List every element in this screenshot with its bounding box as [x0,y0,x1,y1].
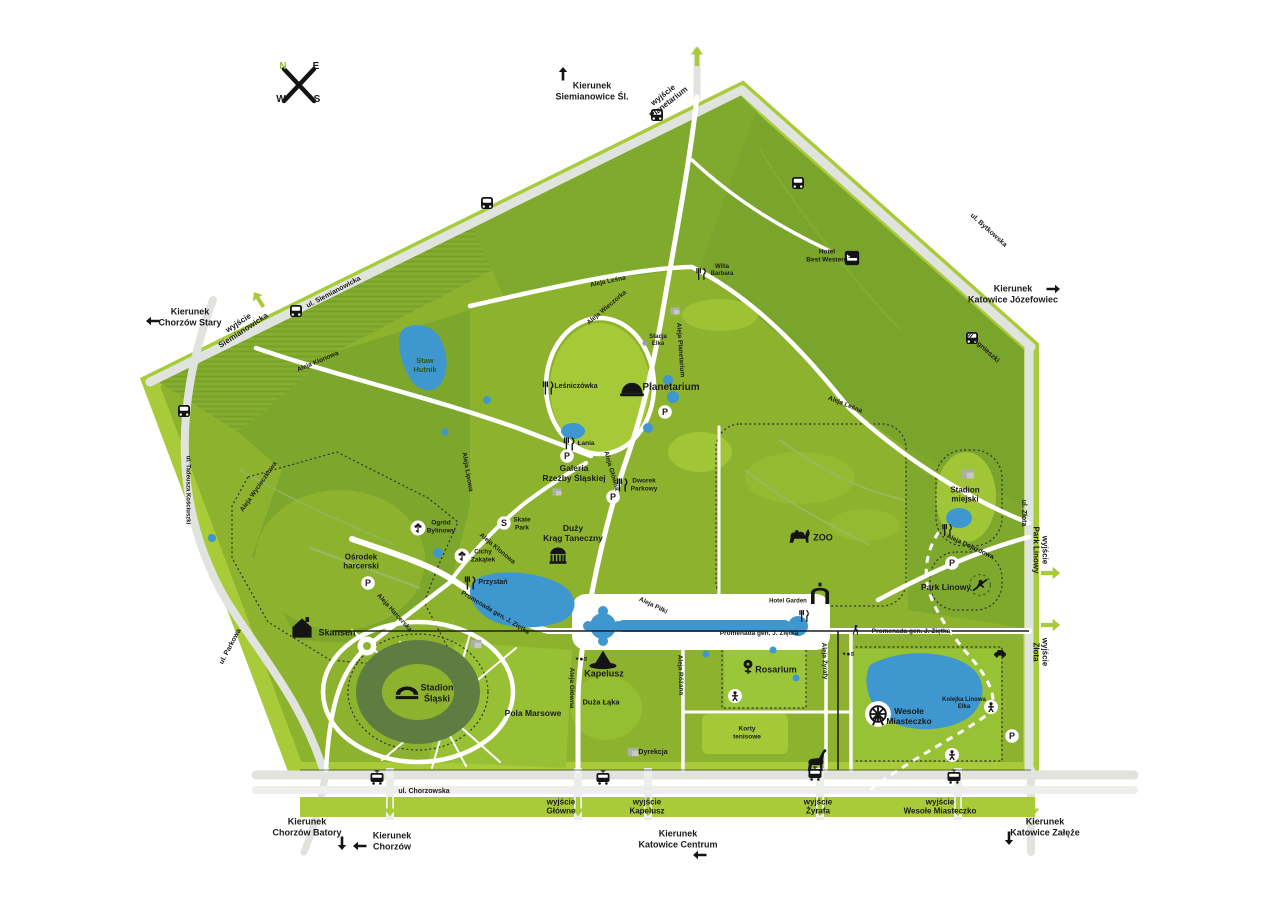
arrow-up-siemianowice-icon [559,67,567,81]
arrow-right-jozefowiec-icon [1047,285,1061,293]
garden-bylinowy-icon [411,521,426,536]
galeria-building-icon [553,489,562,496]
road-building-icon [671,308,680,315]
arrow-left-chorzow-icon [353,842,367,850]
bus-stop-4-icon [481,197,493,209]
parking-harcerski-icon [361,576,375,590]
ferris-wheel-icon [865,701,891,727]
rotunda-icon [550,548,567,564]
arrow-down-batory-icon [338,837,346,851]
bus-stop-3-icon [178,405,190,417]
skatepark-icon [497,516,511,530]
parking-planetarium-icon [658,405,672,419]
compass-icon [284,69,314,101]
bus-stop-1-icon [651,109,663,121]
chorzowska-median [300,797,1035,817]
roundabout-center [363,642,371,650]
stands-building-icon [962,469,974,478]
park-map-svg: P S [0,0,1280,905]
galeria-pond [561,423,585,439]
exit-arrow-siemianowicka-icon [249,289,268,310]
hotel-bed-icon [845,251,859,265]
stadium-field [382,664,454,720]
parking-wesole-icon [1005,729,1019,743]
parking-stadion-miejski-icon [945,556,959,570]
exit-arrow-park-linowy-icon [1041,567,1060,579]
playground-wesole-icon [945,748,959,762]
park-map: P S [0,0,1280,905]
arrow-down-zaleze-icon [1005,832,1013,846]
arrow-left-katowice-centrum-icon [693,851,707,859]
bus-stop-6-icon [966,332,978,344]
tram-stop-2-icon [597,771,610,785]
bus-stop-2-icon [290,305,302,317]
elka-rider-icon [984,700,998,714]
parking-dworek-icon [606,490,620,504]
playground-rosarium-icon [728,689,742,703]
arrow-left-chorzow-stary-icon [146,317,160,325]
elka-station-building-icon [471,640,482,648]
exit-arrow-zlota-icon [1041,619,1060,631]
parking-lania-icon [560,449,574,463]
dyrekcja-building-icon [628,748,639,756]
elka-station-dot-icon [642,340,647,345]
garden-zakatek-icon [455,549,470,564]
tram-stop-1-icon [371,771,384,785]
bus-stop-5-icon [792,177,804,189]
exit-arrow-top-icon [691,47,703,66]
